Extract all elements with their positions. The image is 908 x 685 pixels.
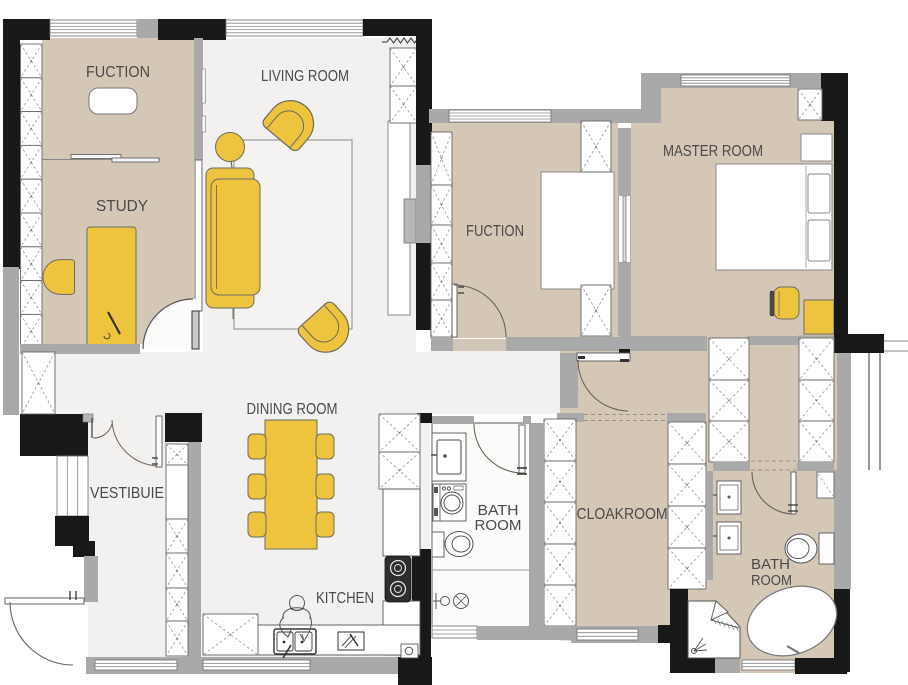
svg-text:FUCTION: FUCTION — [86, 64, 150, 81]
svg-text:MASTER ROOM: MASTER ROOM — [663, 143, 763, 160]
svg-text:BATH: BATH — [751, 557, 790, 573]
svg-text:FUCTION: FUCTION — [466, 223, 524, 240]
svg-text:KITCHEN: KITCHEN — [316, 590, 374, 607]
svg-text:CLOAKROOM: CLOAKROOM — [577, 506, 668, 523]
svg-text:STUDY: STUDY — [96, 198, 148, 215]
svg-text:ROOM: ROOM — [475, 518, 522, 534]
svg-text:DINING ROOM: DINING ROOM — [247, 401, 338, 418]
svg-text:LIVING ROOM: LIVING ROOM — [261, 68, 349, 85]
svg-text:VESTIBUIE: VESTIBUIE — [90, 485, 164, 502]
svg-text:BATH: BATH — [478, 503, 519, 519]
svg-text:ROOM: ROOM — [751, 573, 792, 589]
